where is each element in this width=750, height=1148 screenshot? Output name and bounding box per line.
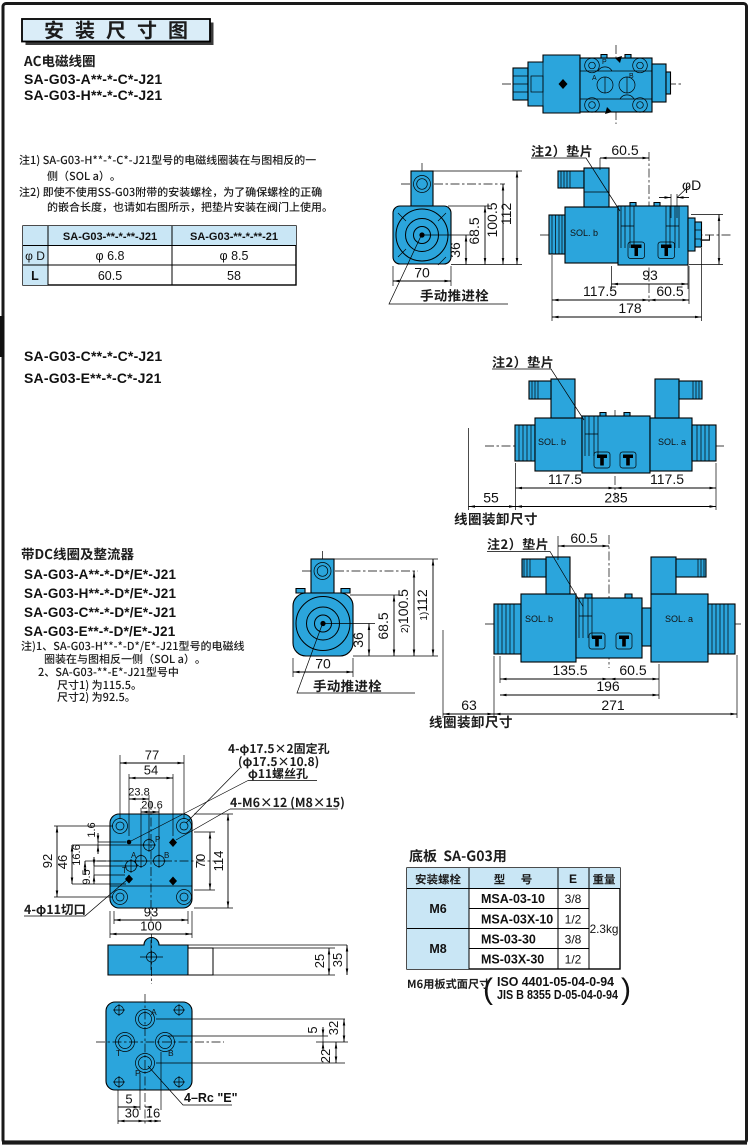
svg-text:3/8: 3/8: [565, 933, 582, 947]
svg-text:SA-G03-A**-*-C*-J21: SA-G03-A**-*-C*-J21: [24, 71, 162, 87]
svg-text:A: A: [131, 851, 137, 860]
svg-text:16: 16: [146, 1106, 160, 1121]
svg-text:SA-G03-C**-*-C*-J21: SA-G03-C**-*-C*-J21: [24, 348, 162, 364]
svg-text:36: 36: [447, 242, 463, 258]
svg-text:A: A: [151, 1007, 157, 1017]
svg-text:1/2: 1/2: [565, 913, 582, 927]
svg-text:22: 22: [318, 1049, 333, 1063]
svg-text:φD: φD: [682, 177, 701, 193]
svg-text:1/2: 1/2: [565, 953, 582, 967]
svg-text:77: 77: [145, 748, 159, 763]
svg-text:SOL. b: SOL. b: [525, 614, 553, 624]
svg-text:112: 112: [498, 203, 514, 226]
svg-text:A: A: [592, 75, 597, 82]
svg-text:68.5: 68.5: [466, 217, 482, 244]
svg-text:SOL. b: SOL. b: [570, 228, 598, 238]
svg-text:T: T: [122, 866, 127, 875]
svg-text:16.6: 16.6: [71, 844, 83, 865]
svg-text:SOL. a: SOL. a: [665, 614, 693, 624]
svg-text:4–Rc "E": 4–Rc "E": [184, 1091, 238, 1105]
svg-text:SA-G03-E**-*-C*-J21: SA-G03-E**-*-C*-J21: [24, 370, 162, 386]
svg-text:P: P: [602, 59, 607, 66]
svg-text:M8: M8: [429, 942, 446, 956]
svg-text:E: E: [569, 872, 577, 886]
svg-text:46: 46: [55, 855, 70, 869]
svg-text:MS-03-30: MS-03-30: [481, 933, 536, 947]
svg-text:114: 114: [211, 851, 226, 872]
svg-text:117.5: 117.5: [583, 283, 617, 299]
svg-text:60.5: 60.5: [656, 283, 683, 299]
svg-text:235: 235: [604, 490, 628, 506]
svg-text:20.6: 20.6: [141, 800, 162, 812]
svg-text:B: B: [168, 1048, 174, 1058]
svg-text:B: B: [629, 73, 634, 80]
svg-text:93: 93: [144, 905, 158, 920]
svg-text:9.5: 9.5: [81, 869, 93, 884]
svg-text:SA-G03-**-*-**-J21: SA-G03-**-*-**-J21: [63, 231, 157, 243]
svg-text:92: 92: [40, 854, 55, 868]
svg-text:60.5: 60.5: [611, 142, 638, 158]
svg-text:117.5: 117.5: [548, 471, 582, 487]
svg-text:(: (: [483, 973, 493, 1006]
svg-text:117.5: 117.5: [650, 471, 684, 487]
svg-text:23.8: 23.8: [128, 787, 149, 799]
svg-text:ISO 4401-05-04-0-94: ISO 4401-05-04-0-94: [497, 975, 614, 989]
svg-text:φ D: φ D: [25, 249, 45, 263]
svg-text:T: T: [116, 1048, 121, 1058]
svg-text:60.5: 60.5: [98, 269, 122, 283]
svg-text:SOL. b: SOL. b: [538, 437, 566, 447]
svg-text:271: 271: [601, 697, 625, 713]
svg-text:SA-G03-E**-*-D*/E*-J21: SA-G03-E**-*-D*/E*-J21: [24, 624, 176, 639]
svg-text:93: 93: [642, 267, 658, 283]
svg-text:P: P: [155, 835, 160, 844]
svg-text:5: 5: [305, 1026, 320, 1033]
svg-text:φ 6.8: φ 6.8: [96, 249, 125, 263]
svg-text:68.5: 68.5: [375, 612, 391, 639]
svg-text:178: 178: [618, 300, 642, 316]
svg-text:70: 70: [414, 265, 430, 281]
svg-text:3/8: 3/8: [565, 892, 582, 906]
svg-text:60.5: 60.5: [619, 662, 646, 678]
svg-text:φ 8.5: φ 8.5: [220, 249, 249, 263]
svg-text:70: 70: [315, 656, 331, 672]
svg-text:): ): [621, 973, 631, 1006]
svg-text:30: 30: [125, 1106, 139, 1121]
svg-text:60.5: 60.5: [570, 530, 597, 546]
svg-text:M6: M6: [429, 902, 446, 916]
svg-text:54: 54: [144, 763, 158, 778]
svg-text:70: 70: [193, 854, 208, 868]
svg-text:SOL. a: SOL. a: [658, 437, 686, 447]
svg-text:63: 63: [461, 697, 477, 713]
svg-text:SA-G03-A**-*-D*/E*-J21: SA-G03-A**-*-D*/E*-J21: [24, 567, 176, 582]
svg-text:L: L: [697, 234, 713, 242]
svg-text:1.6: 1.6: [86, 822, 98, 837]
svg-text:JIS B 8355 D-05-04-0-94: JIS B 8355 D-05-04-0-94: [497, 988, 618, 1002]
svg-text:58: 58: [227, 269, 241, 283]
svg-text:32: 32: [326, 1021, 341, 1035]
svg-text:SA-G03-**-*-**-21: SA-G03-**-*-**-21: [190, 231, 278, 243]
svg-text:135.5: 135.5: [552, 662, 587, 678]
svg-text:5: 5: [125, 1092, 132, 1107]
svg-text:B: B: [164, 851, 169, 860]
svg-text:SA-G03-H**-*-C*-J21: SA-G03-H**-*-C*-J21: [24, 87, 162, 103]
svg-text:100: 100: [140, 919, 162, 934]
svg-text:SA-G03-H**-*-D*/E*-J21: SA-G03-H**-*-D*/E*-J21: [24, 586, 176, 601]
svg-text:L: L: [31, 269, 39, 283]
svg-text:196: 196: [596, 678, 620, 694]
svg-text:MSA-03-10: MSA-03-10: [481, 892, 545, 906]
svg-text:MSA-03X-10: MSA-03X-10: [481, 913, 553, 927]
svg-text:36: 36: [350, 632, 366, 648]
svg-text:2.3kg: 2.3kg: [590, 922, 619, 936]
svg-text:35: 35: [330, 953, 345, 967]
svg-text:25: 25: [312, 954, 327, 968]
svg-text:MS-03X-30: MS-03X-30: [481, 953, 544, 967]
svg-text:SA-G03-C**-*-D*/E*-J21: SA-G03-C**-*-D*/E*-J21: [24, 605, 176, 620]
svg-text:55: 55: [483, 490, 499, 506]
